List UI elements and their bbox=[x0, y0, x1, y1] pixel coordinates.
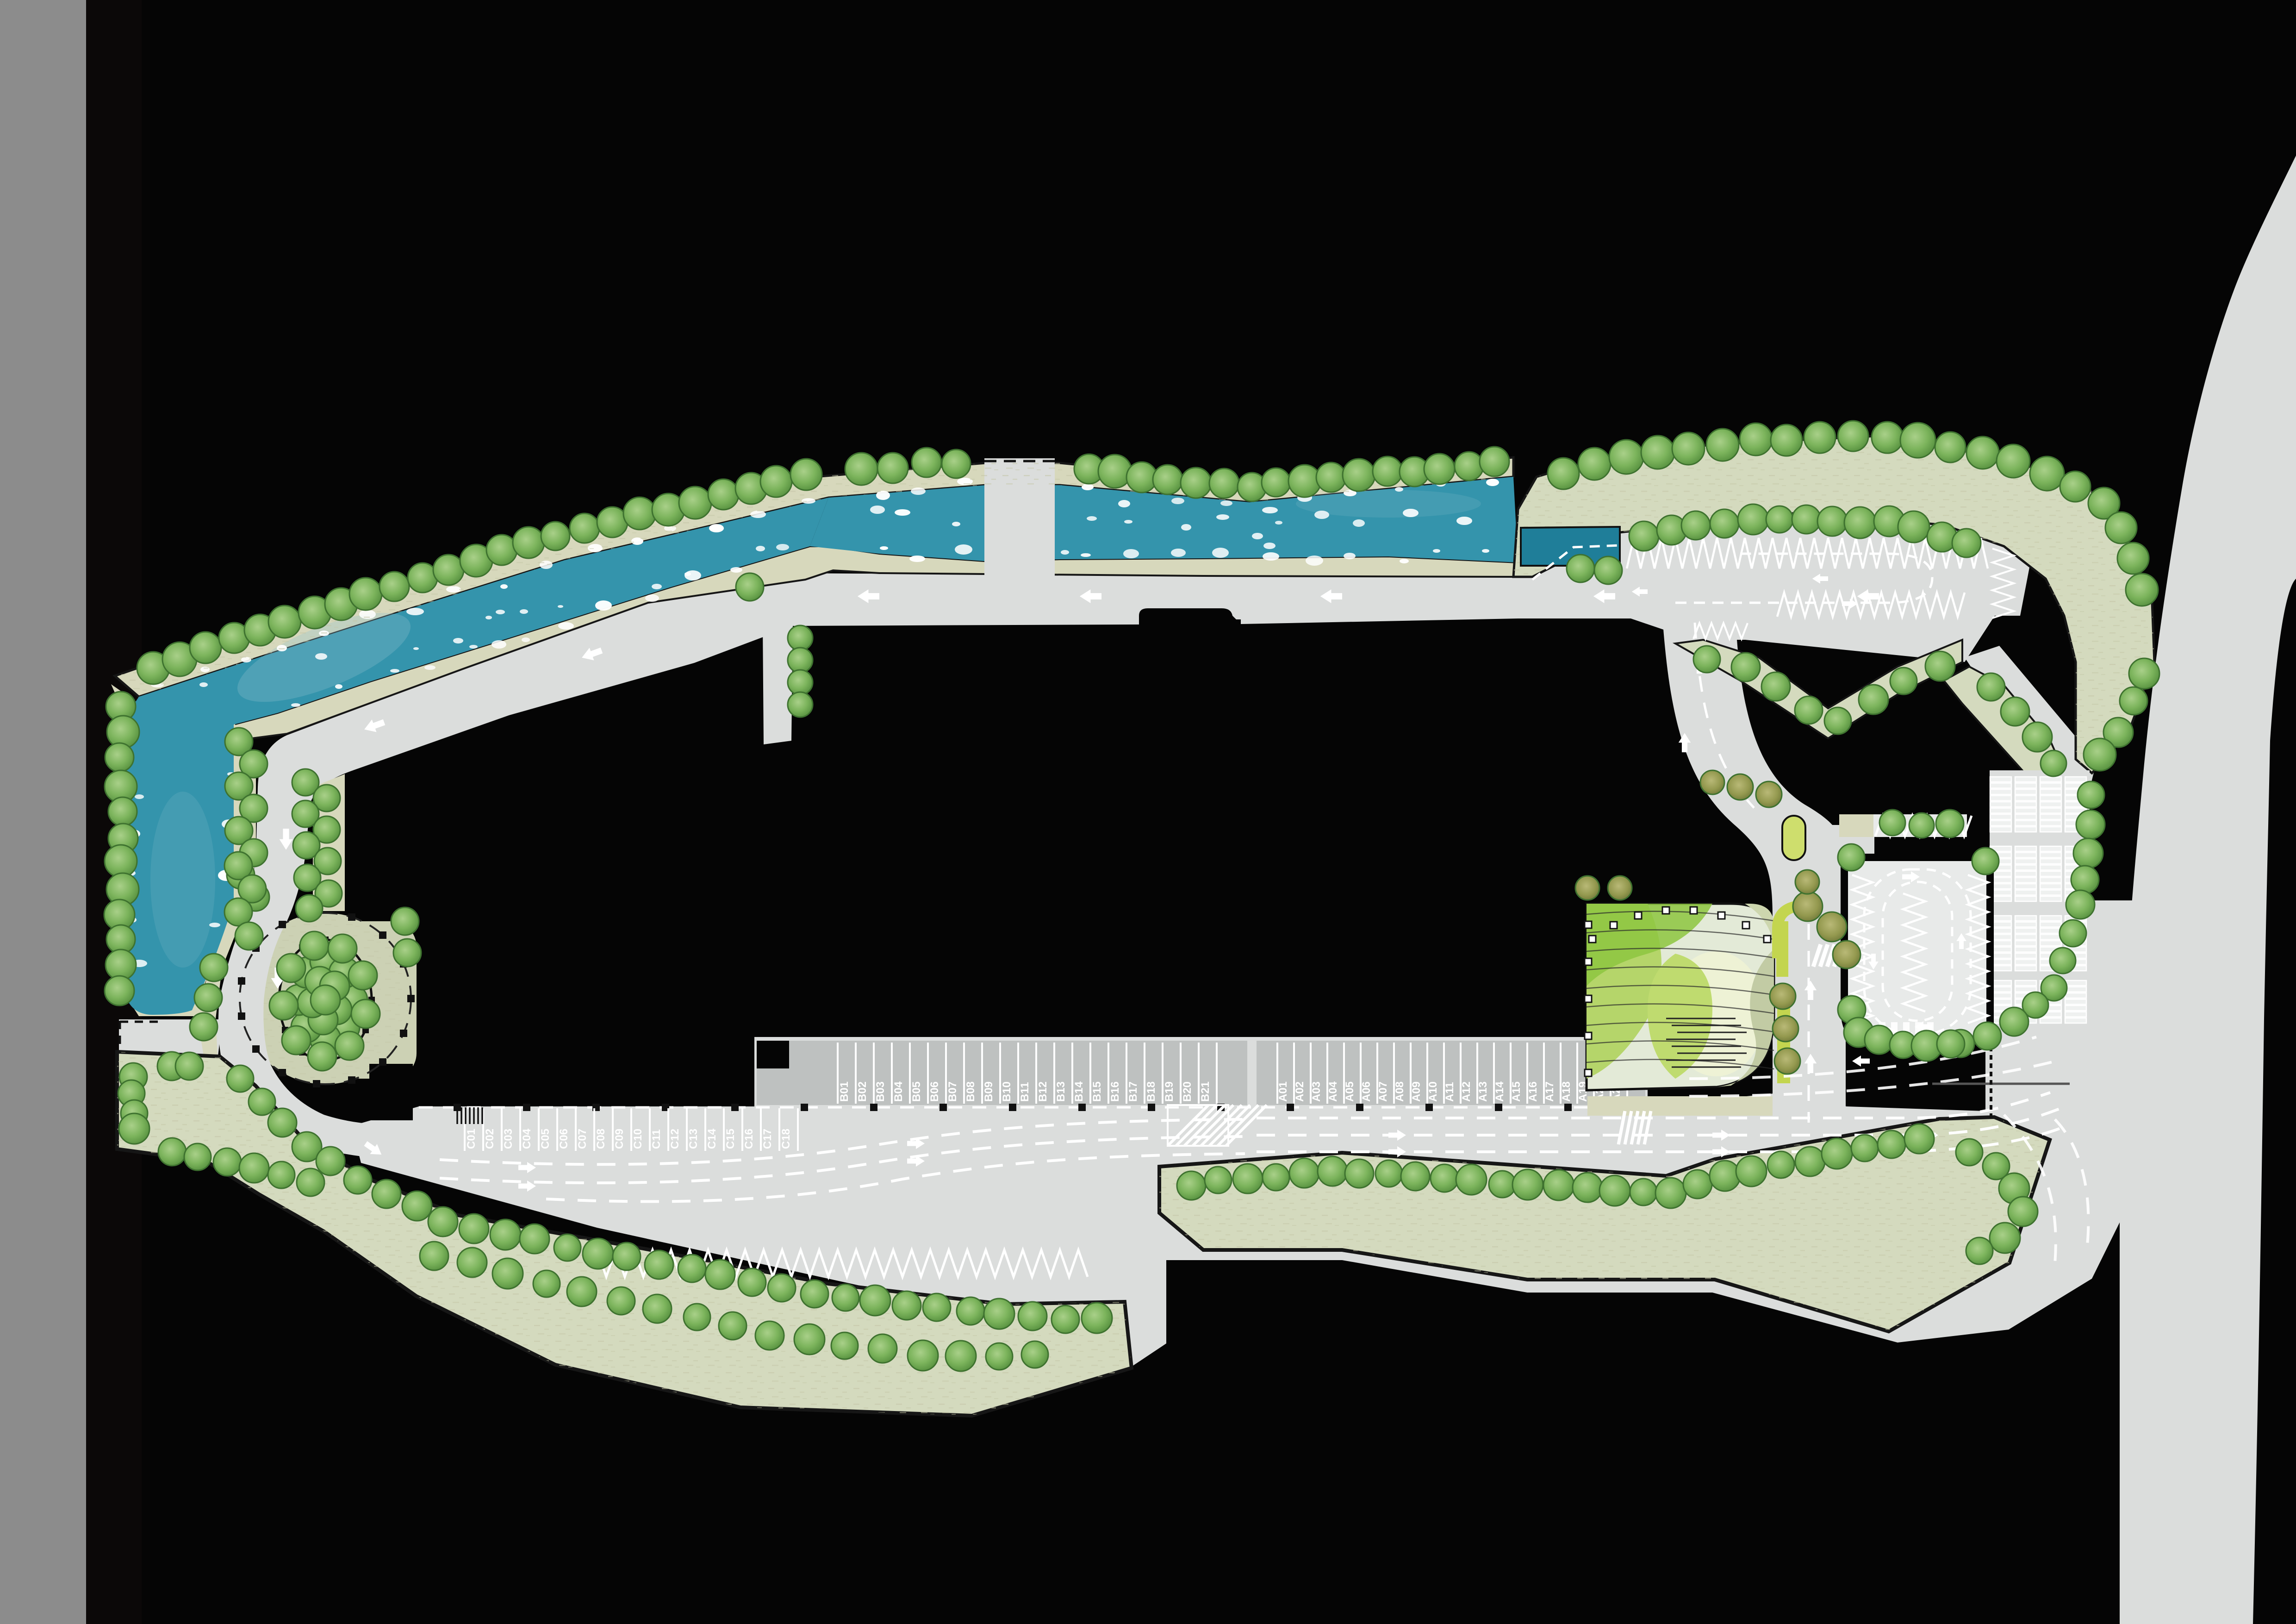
svg-text:C11: C11 bbox=[650, 1129, 663, 1149]
svg-text:A11: A11 bbox=[1444, 1082, 1456, 1102]
svg-text:A18: A18 bbox=[1560, 1081, 1573, 1102]
svg-text:A15: A15 bbox=[1510, 1081, 1523, 1102]
svg-text:C09: C09 bbox=[613, 1129, 626, 1149]
svg-text:B11: B11 bbox=[1019, 1082, 1031, 1102]
svg-text:B17: B17 bbox=[1127, 1081, 1139, 1102]
svg-text:A09: A09 bbox=[1410, 1081, 1423, 1102]
svg-text:B12: B12 bbox=[1037, 1081, 1049, 1102]
svg-text:C13: C13 bbox=[687, 1129, 700, 1149]
svg-text:A04: A04 bbox=[1327, 1081, 1339, 1102]
svg-text:B07: B07 bbox=[946, 1081, 959, 1102]
svg-text:A07: A07 bbox=[1377, 1081, 1389, 1102]
svg-text:B13: B13 bbox=[1055, 1081, 1067, 1102]
svg-text:B10: B10 bbox=[1001, 1081, 1013, 1102]
svg-text:C06: C06 bbox=[558, 1129, 570, 1149]
svg-text:B01: B01 bbox=[838, 1081, 851, 1102]
svg-text:B19: B19 bbox=[1163, 1081, 1176, 1102]
svg-text:A02: A02 bbox=[1294, 1081, 1306, 1102]
svg-text:B04: B04 bbox=[892, 1081, 905, 1102]
svg-text:C04: C04 bbox=[521, 1128, 533, 1149]
svg-text:A01: A01 bbox=[1277, 1081, 1289, 1102]
svg-text:A17: A17 bbox=[1543, 1081, 1556, 1102]
svg-text:C16: C16 bbox=[743, 1129, 755, 1149]
svg-text:A16: A16 bbox=[1527, 1081, 1539, 1102]
svg-text:B15: B15 bbox=[1091, 1081, 1103, 1102]
svg-text:C01: C01 bbox=[465, 1129, 478, 1149]
svg-text:C03: C03 bbox=[502, 1129, 515, 1149]
svg-text:A06: A06 bbox=[1360, 1081, 1373, 1102]
svg-text:B18: B18 bbox=[1145, 1081, 1157, 1102]
svg-text:A10: A10 bbox=[1427, 1081, 1439, 1102]
svg-text:B03: B03 bbox=[874, 1081, 887, 1102]
svg-text:B08: B08 bbox=[964, 1081, 977, 1102]
svg-text:A12: A12 bbox=[1460, 1081, 1473, 1102]
svg-text:A08: A08 bbox=[1394, 1081, 1406, 1102]
svg-text:B21: B21 bbox=[1199, 1081, 1212, 1102]
svg-text:B06: B06 bbox=[928, 1081, 941, 1102]
svg-text:B09: B09 bbox=[983, 1081, 995, 1102]
svg-text:C17: C17 bbox=[761, 1129, 774, 1149]
svg-text:B16: B16 bbox=[1109, 1081, 1121, 1102]
svg-text:A13: A13 bbox=[1477, 1081, 1489, 1102]
svg-text:A05: A05 bbox=[1344, 1081, 1356, 1102]
svg-text:C02: C02 bbox=[484, 1129, 496, 1149]
svg-text:C10: C10 bbox=[632, 1129, 644, 1149]
svg-text:C07: C07 bbox=[576, 1129, 589, 1149]
svg-text:C18: C18 bbox=[780, 1129, 792, 1149]
svg-text:B20: B20 bbox=[1181, 1081, 1194, 1102]
svg-text:C15: C15 bbox=[724, 1129, 737, 1149]
svg-text:A03: A03 bbox=[1310, 1081, 1323, 1102]
svg-text:C05: C05 bbox=[539, 1129, 552, 1149]
svg-text:C14: C14 bbox=[706, 1128, 718, 1149]
svg-text:B05: B05 bbox=[910, 1081, 923, 1102]
svg-text:C08: C08 bbox=[595, 1129, 607, 1149]
svg-text:B14: B14 bbox=[1073, 1081, 1085, 1102]
svg-text:A14: A14 bbox=[1493, 1081, 1506, 1102]
svg-text:C12: C12 bbox=[669, 1129, 681, 1149]
svg-text:B02: B02 bbox=[856, 1081, 869, 1102]
